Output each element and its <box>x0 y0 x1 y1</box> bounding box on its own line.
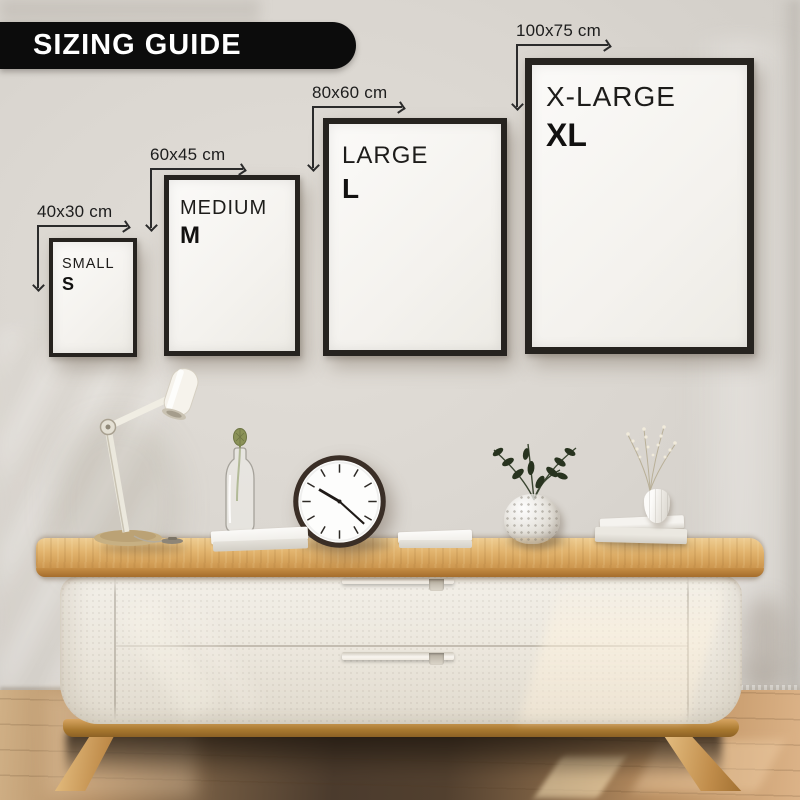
desk-lamp-icon <box>88 366 212 552</box>
size-name: X-LARGE <box>546 81 747 113</box>
dark-foliage-icon <box>482 438 582 502</box>
dimension-label-medium: 60x45 cm <box>150 145 225 165</box>
drawer-handle <box>342 578 454 584</box>
sizing-guide-image: SIZING GUIDE 40x30 cm 60x45 cm 80x60 cm … <box>0 0 800 800</box>
dried-flowers-icon <box>620 421 680 493</box>
title-banner: SIZING GUIDE <box>0 22 356 69</box>
picture-frame-xlarge: X-LARGE XL <box>525 58 754 354</box>
size-abbr: XL <box>546 118 747 153</box>
bud-vase-bottle-icon <box>220 427 260 539</box>
book-icon <box>595 527 687 544</box>
frame-mat: X-LARGE XL <box>532 65 747 347</box>
drawer-handle <box>342 652 454 660</box>
size-abbr: L <box>342 174 501 205</box>
size-abbr: M <box>180 223 295 249</box>
picture-frame-large: LARGE L <box>323 118 507 356</box>
arrow-down-icon <box>312 106 314 168</box>
wall-edge-shade <box>778 0 800 692</box>
handle-notch <box>429 653 444 665</box>
panel-seam <box>114 577 116 721</box>
book-edge <box>399 540 472 548</box>
size-name: MEDIUM <box>180 197 295 220</box>
arrow-down-icon <box>150 168 152 228</box>
frame-mat: LARGE L <box>329 124 501 350</box>
bubble-glass-vase-icon <box>504 494 560 544</box>
picture-frame-small: SMALL S <box>49 238 137 357</box>
dimension-label-xlarge: 100x75 cm <box>516 21 601 41</box>
frame-mat: SMALL S <box>53 242 133 353</box>
handle-notch <box>429 579 444 591</box>
arrow-right-icon <box>312 106 402 108</box>
arrow-right-icon <box>37 225 127 227</box>
frame-mat: MEDIUM M <box>169 180 295 351</box>
size-name: SMALL <box>62 256 133 273</box>
arrow-right-icon <box>516 44 608 46</box>
page-title: SIZING GUIDE <box>0 29 242 62</box>
dimension-label-small: 40x30 cm <box>37 202 112 222</box>
size-name: LARGE <box>342 142 501 170</box>
arrow-down-icon <box>37 225 39 288</box>
size-abbr: S <box>62 275 133 295</box>
cabinet-wall-shadow <box>742 598 786 694</box>
picture-frame-medium: MEDIUM M <box>164 175 300 356</box>
dimension-label-large: 80x60 cm <box>312 83 387 103</box>
arrow-down-icon <box>516 44 518 107</box>
arrow-right-icon <box>150 168 243 170</box>
